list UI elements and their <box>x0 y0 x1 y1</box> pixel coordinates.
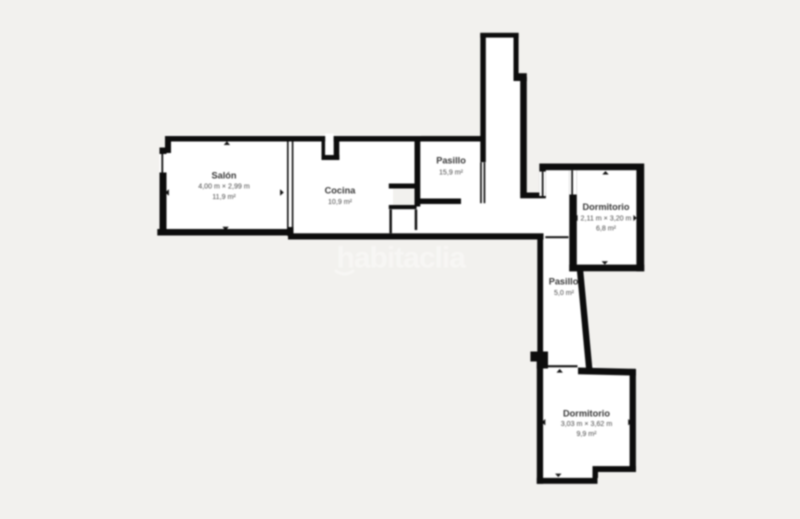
svg-text:Cocina: Cocina <box>325 186 357 196</box>
svg-text:Pasillo: Pasillo <box>549 276 579 286</box>
svg-text:3,03 m × 3,62 m: 3,03 m × 3,62 m <box>561 420 613 428</box>
svg-text:5,0 m²: 5,0 m² <box>554 289 575 297</box>
svg-text:Dormitorio: Dormitorio <box>583 202 630 212</box>
svg-text:2,11 m × 3,20 m: 2,11 m × 3,20 m <box>581 214 632 222</box>
svg-text:9,9 m²: 9,9 m² <box>576 430 597 438</box>
svg-text:Dormitorio: Dormitorio <box>563 408 610 418</box>
svg-text:4,00 m × 2,99 m: 4,00 m × 2,99 m <box>198 183 250 191</box>
svg-text:Salón: Salón <box>211 171 236 181</box>
svg-text:15,9 m²: 15,9 m² <box>439 168 464 176</box>
svg-text:11,9 m²: 11,9 m² <box>212 193 236 201</box>
svg-text:10,9 m²: 10,9 m² <box>328 198 353 206</box>
svg-text:6,8 m²: 6,8 m² <box>596 225 617 233</box>
svg-text:Pasillo: Pasillo <box>436 155 466 165</box>
svg-text:habitaclia: habitaclia <box>337 242 467 275</box>
